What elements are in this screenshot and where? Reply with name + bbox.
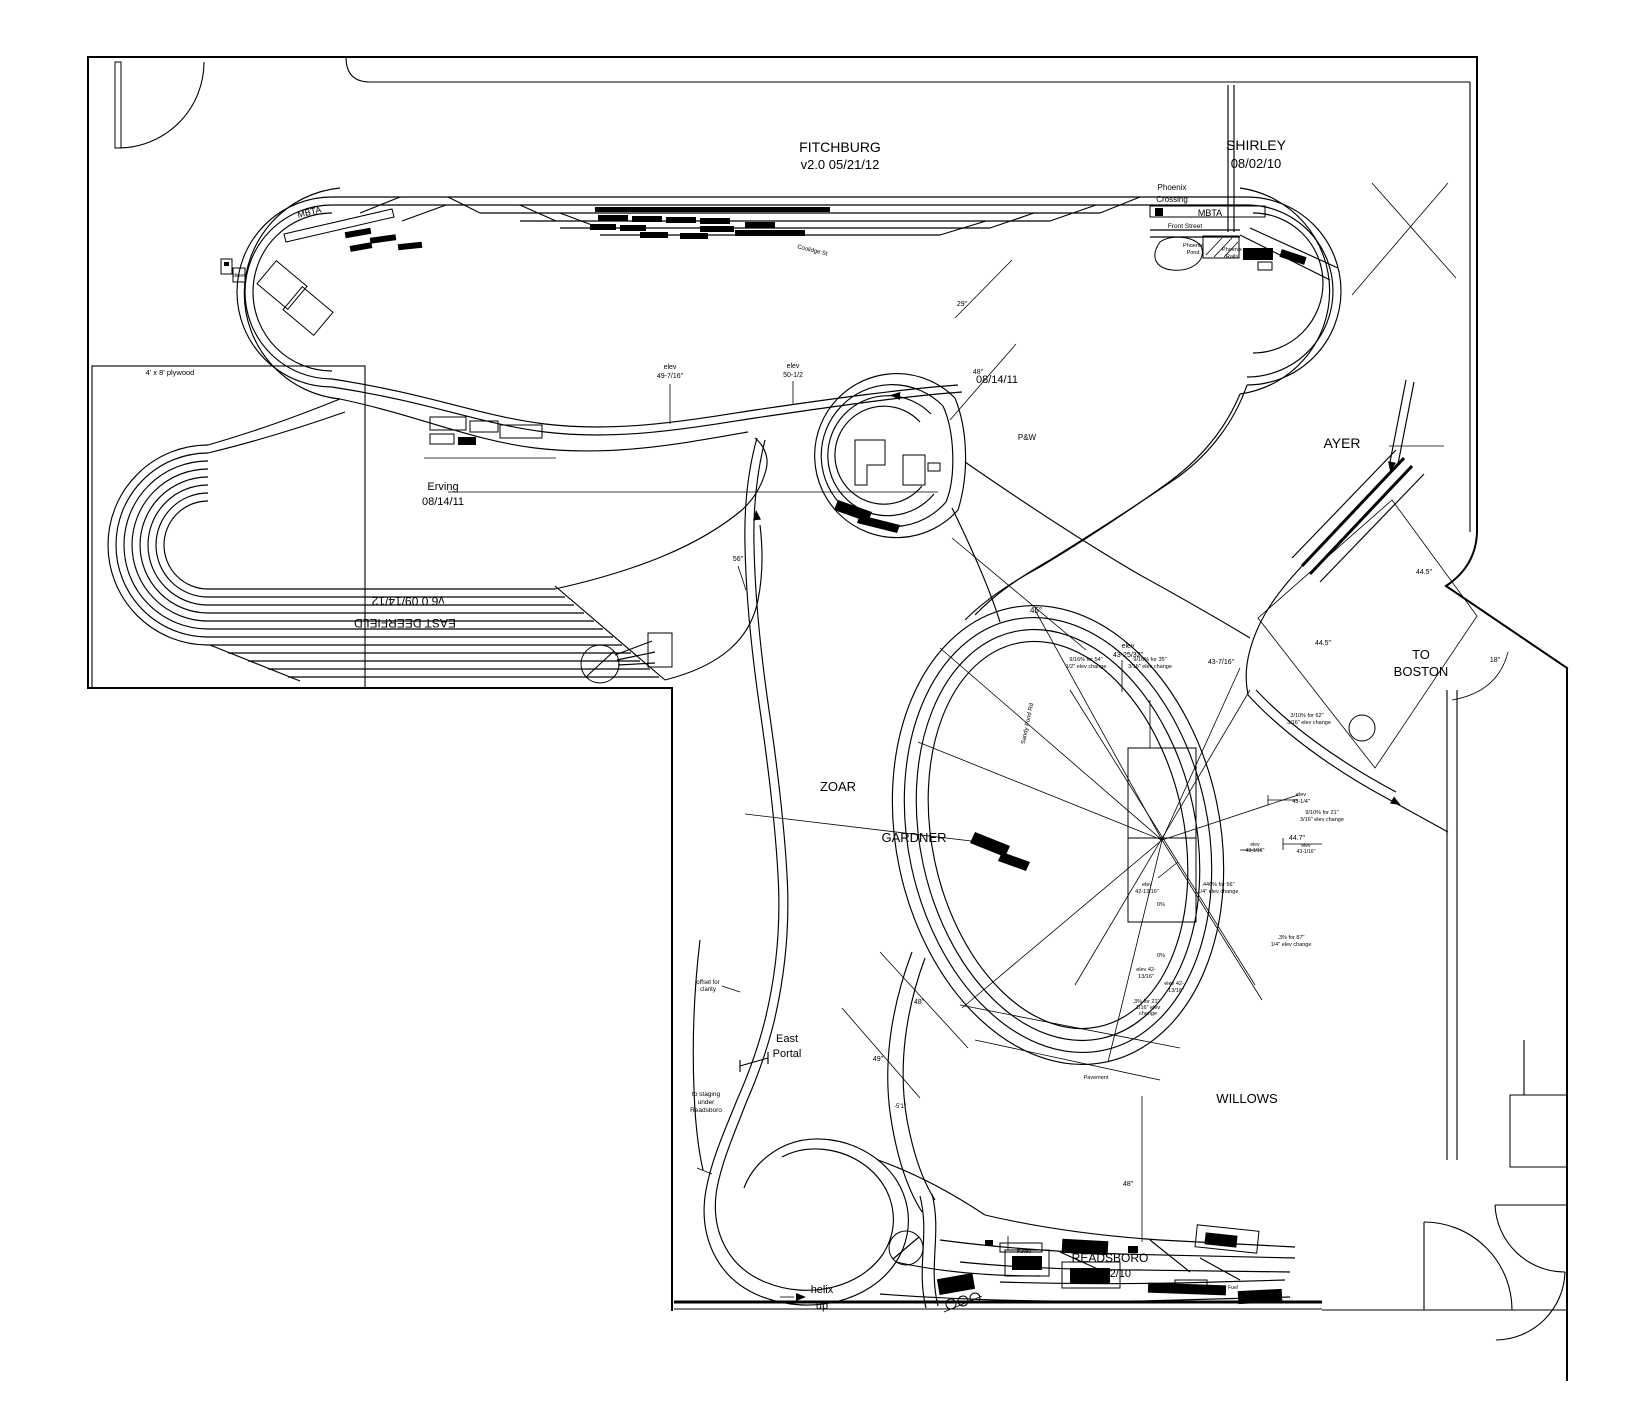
label-grade-1b: 1/2" elev change [1066,664,1107,670]
label-elev-50-b: 50-1/2 [783,372,803,379]
door-leaf-topleft [115,62,121,148]
callout-line [722,986,740,992]
turntable-bridge [586,651,614,677]
label-elev-4213-e: elev 42- [1164,981,1184,987]
arrow-helix-up [796,1293,806,1301]
town-building [928,463,940,471]
plywood-sheet [92,366,365,688]
wall-fillet [1446,532,1477,586]
door-arc-right-upper [1495,1205,1565,1272]
track-segment [737,438,779,1100]
boston-line [1246,566,1302,695]
label-paved-1: Paved [1017,1249,1031,1255]
label-pavement: Pavement [1084,1075,1109,1081]
door-arc-bottomright [1424,1222,1512,1310]
label-dim-56: 56" [733,556,744,563]
label-elev-4316-b: 43-1/16" [1246,848,1265,854]
label-fitchburg: FITCHBURG [799,139,881,155]
track-to-readsboro [888,952,922,1212]
cabinet [1510,1095,1567,1167]
label-crossing: Crossing [1156,195,1188,204]
stream [920,1196,926,1308]
building [257,261,307,310]
mill-building [430,434,454,444]
label-zoar: ZOAR [820,779,856,794]
label-readsboro-date: 11/22/10 [1089,1268,1131,1280]
label-phoenix-pond-2: Pond [1187,250,1200,256]
label-staging-1: to staging [692,1091,721,1098]
station-platform [595,207,830,212]
loop-track [828,396,934,516]
roundhouse-lead [618,663,655,665]
track-plan-canvas: FITCHBURGv2.0 05/21/12SHIRLEY08/02/10Pho… [0,0,1652,1424]
label-pw: P&W [1018,433,1037,442]
staging-track [1398,382,1414,464]
label-fitchburg-date: v2.0 05/21/12 [801,157,880,172]
mill-building [458,437,476,445]
label-to-boston-1: TO [1412,647,1430,662]
yard-lead-curve [108,445,208,645]
helix-exit [878,1160,985,1215]
curve-shirley [1247,205,1333,377]
label-erving: Erving [427,481,458,493]
label-east-deerfield: EAST DEERFIELD [354,616,456,630]
dim-line [1372,183,1456,278]
connector-track [965,462,1250,638]
label-readsboro: READSBORO [1072,1251,1149,1265]
freight-car [735,230,805,236]
post [1349,715,1375,741]
building [283,287,333,336]
label-elev-49-b: 49-7/16" [657,373,684,380]
label-helix-1: helix [811,1284,834,1296]
ayer-station-track [1302,458,1404,566]
freight-car [640,232,668,238]
label-mbta-right: MBTA [1198,208,1222,218]
building [224,262,229,266]
labels-layer: FITCHBURGv2.0 05/21/12SHIRLEY08/02/10Pho… [146,137,1501,1312]
building [1204,1232,1237,1247]
bench-diamond [1258,500,1477,768]
dim-line [842,1008,920,1098]
label-grade-4b: 3/16" elev change [1300,817,1344,823]
label-sandy-pond-rd: Sandy Pond Rd [1021,703,1036,745]
freight-car [632,216,662,222]
yard-lead-curve [164,501,208,589]
label-willows: WILLOWS [1216,1091,1278,1106]
label-date-center: 08/14/11 [976,374,1018,386]
elevation-marks [670,381,1322,878]
structure [998,852,1030,871]
label-elev-4213-d: 13/16" [1138,974,1154,980]
curve-fitchburg [244,188,340,399]
dim-line [952,538,1086,650]
label-east-deerfield-date: v6.0 09/14/12 [371,594,444,608]
label-grade-6a: .3% for 87" [1277,935,1304,941]
yard-track [1000,1280,1285,1284]
label-to-boston-2: BOSTON [1394,664,1449,679]
label-dim-445-b: 44.5" [1315,640,1332,647]
freight-car [666,217,696,223]
label-grade-2b: 3/16" elev change [1128,664,1172,670]
direction-arrow [752,510,761,521]
freight-car [620,225,646,231]
freight-car [590,224,616,230]
freight-car [598,215,628,221]
door-arc-right-lower [1496,1272,1565,1340]
curve-shirley [1240,188,1330,394]
gardner-loop [815,374,966,538]
label-front-street: Front Street [1168,223,1203,230]
yard-lead-curve [140,477,208,613]
mill-building [500,425,542,438]
label-offset-2: clarity [700,987,716,993]
track-plan-page: FITCHBURGv2.0 05/21/12SHIRLEY08/02/10Pho… [0,0,1652,1424]
label-paved-2: Paved [1183,1284,1197,1290]
label-grade-5b: 1/4" elev change [1198,889,1239,895]
freight-car [700,218,730,224]
label-dim-43716: 43-7/16" [1208,659,1235,666]
east-deerfield-yard [108,399,767,683]
track-segment [340,399,748,451]
curve-fitchburg [237,197,332,387]
staging-track [1390,380,1406,462]
fitchburg-structures [221,207,830,335]
connector-track [952,508,1000,622]
label-grade-4a: 9/10% for 21" [1305,810,1338,816]
yard-connector [208,399,340,445]
yard-track [880,1294,1290,1301]
label-elev-4325-a: elev [1122,643,1135,650]
label-offset-1: offset for [696,980,719,986]
label-grade-0a: 0% [1157,902,1165,908]
label-helix-2: up [816,1300,828,1312]
label-grade-3b: 3/16" elev change [1287,720,1331,726]
loop-track [955,398,966,510]
elev-tick [1158,862,1178,878]
label-mbta-left: MBTA [296,204,322,219]
building [985,1240,993,1246]
label-ayer: AYER [1323,435,1360,451]
door-arc-topleft [118,62,204,148]
staging-track [693,940,703,1170]
mill-building [1258,262,1272,270]
label-shirley-date: 08/02/10 [1231,156,1282,171]
label-elev-4314-a: elev [1296,792,1306,798]
label-dim-445-a: 44.5" [1416,569,1433,576]
track-segment [965,394,1240,620]
label-elev-49-a: elev [664,364,677,371]
roundhouse [648,633,672,667]
label-dim-48-bot: 48" [1123,1181,1134,1188]
label-coolidge-st: Coolidge St [796,244,828,257]
tunnel-portal-mark [740,1052,768,1072]
label-grade-0b: 0% [1157,953,1165,959]
freight-car [350,242,373,252]
dim-line [1352,183,1448,295]
direction-arrow [1390,797,1403,809]
label-east-portal-2: Portal [773,1048,802,1060]
label-grade-5a: .446% for 56" [1201,882,1234,888]
loop-track [943,406,953,502]
willows-loops [842,508,1298,1242]
building [937,1273,975,1295]
readsboro-yard [674,1194,1322,1312]
label-plywood: 4' x 8' plywood [146,368,195,377]
label-staging-3: Readsboro [690,1107,722,1114]
label-grade-7c: change [1139,1011,1157,1017]
soffit-band [346,57,1470,82]
label-elev-4213-a: elev [1142,882,1152,888]
label-dim-447: 44.7" [1289,835,1306,842]
town-building [903,455,925,485]
freight-car [370,234,397,244]
room-walls [88,57,1567,1380]
label-dim-51: -5'1" [894,1104,906,1110]
track-segment [746,440,788,1103]
label-east-portal-1: East [776,1033,798,1045]
label-phoenix: Phoenix [1158,183,1187,192]
helix [704,1100,1040,1305]
ayer-junction [965,183,1508,832]
label-dim-29: 29" [957,301,968,308]
ayer-station-track [1310,466,1412,574]
label-phoenix-rails-1: Phoenix [1222,247,1242,253]
doors [115,62,1567,1340]
label-grade-2a: 9/16% for 35" [1133,657,1166,663]
label-elev-50-a: elev [787,363,800,370]
dim-line [738,566,746,590]
building [221,259,232,274]
stream [932,1194,938,1306]
label-elev-4213-c: elev 42- [1136,967,1156,973]
freight-car [398,242,422,250]
label-staging-2: under [698,1099,715,1106]
label-grade-3a: 3/10% for 62" [1290,713,1323,719]
curve-shirley [1247,197,1341,385]
building [1012,1256,1042,1270]
dim-line [955,260,1012,318]
town-building [855,440,885,485]
label-dim-49: 49" [873,1056,884,1063]
yard-ladder-left [210,645,300,681]
label-elev-4316-d: 43-1/16" [1297,849,1316,855]
label-phoenix-pond-1: Phoenix [1183,243,1203,249]
label-dim-45deg: 45° [1030,606,1042,615]
label-grade-1a: 9/16% for 54" [1069,657,1102,663]
label-fuel: Fuel [1228,1285,1238,1291]
turnout [402,205,446,221]
label-dim-18: 18" [1490,657,1501,664]
freight-car [680,233,708,239]
yard-lead-east [555,438,767,589]
yard-track [985,1215,1295,1247]
curve-fitchburg [245,205,332,379]
label-erving-date: 08/14/11 [422,496,464,508]
shelter [1155,208,1163,216]
yard-connector [208,412,345,453]
label-shirley: SHIRLEY [1226,137,1287,153]
label-dim-48-mid: 48" [914,999,925,1006]
helix-track [715,1103,893,1290]
freight-car [745,222,775,228]
label-elev-4314-b: 43-1/4" [1292,799,1310,805]
label-elev-4213-f: 13/16" [1168,988,1184,994]
label-phoenix-rails-2: Rails [1226,254,1238,260]
label-diner: diner [233,273,245,279]
freight-car [700,226,734,232]
yard-lead-curve [116,453,208,637]
label-gardner: GARDNER [881,830,946,845]
cross-dim-lines [1070,690,1255,985]
freight-car [345,228,372,238]
label-grade-6b: 1/4" elev change [1271,942,1312,948]
label-elev-4213-b: 42-13/16" [1135,889,1159,895]
